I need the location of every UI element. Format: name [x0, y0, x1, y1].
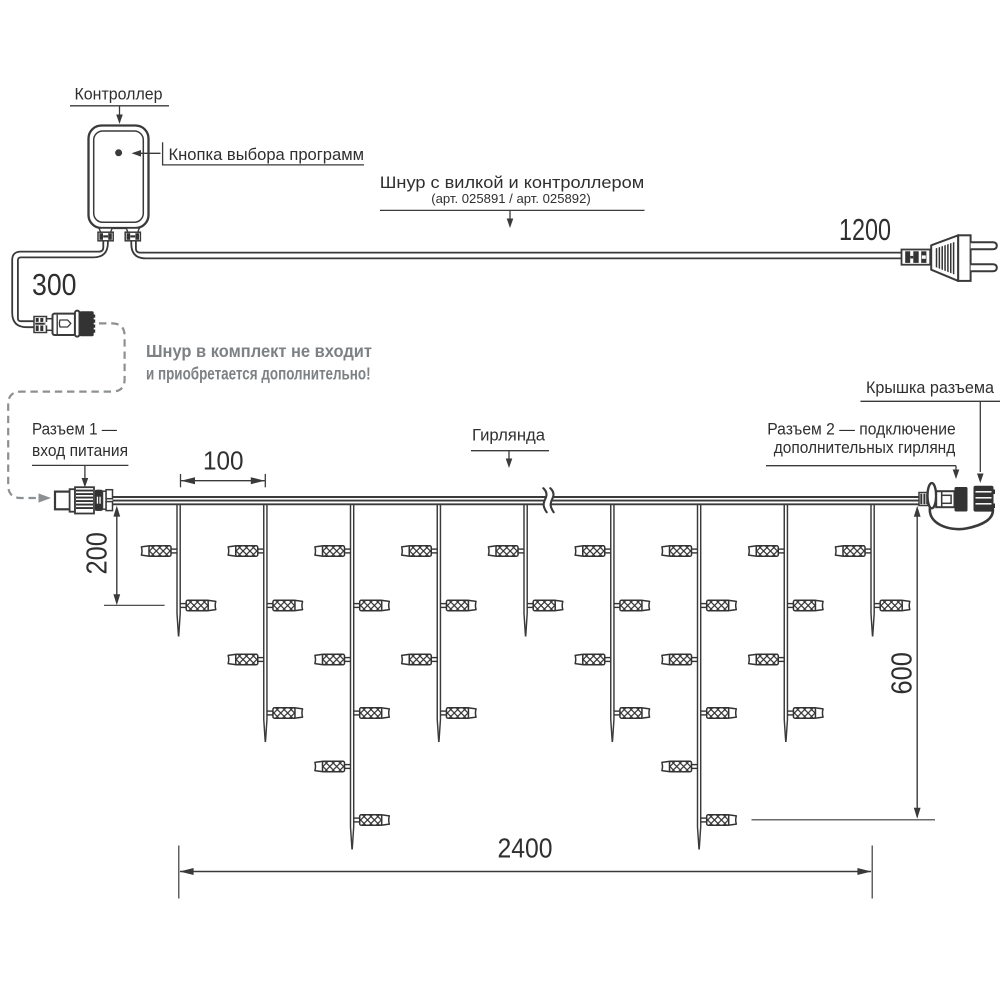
svg-text:300: 300	[32, 268, 77, 302]
svg-text:100: 100	[203, 447, 244, 475]
svg-text:(арт. 025891 / арт. 025892): (арт. 025891 / арт. 025892)	[431, 192, 591, 206]
svg-text:1200: 1200	[839, 213, 891, 247]
svg-text:вход питания: вход питания	[32, 441, 128, 460]
svg-text:2400: 2400	[498, 833, 553, 864]
svg-text:Контроллер: Контроллер	[75, 85, 163, 104]
svg-text:200: 200	[81, 532, 113, 575]
svg-text:Крышка разъема: Крышка разъема	[866, 378, 995, 397]
svg-text:Гирлянда: Гирлянда	[472, 425, 546, 444]
svg-text:дополнительных гирлянд: дополнительных гирлянд	[774, 438, 956, 457]
svg-text:и приобретается дополнительно!: и приобретается дополнительно!	[146, 363, 371, 383]
svg-text:Разъем 2 — подключение: Разъем 2 — подключение	[767, 420, 956, 439]
svg-text:Шнур в комплект не входит: Шнур в комплект не входит	[146, 341, 372, 361]
svg-text:Разъем 1 —: Разъем 1 —	[32, 420, 117, 439]
svg-text:Кнопка выбора программ: Кнопка выбора программ	[169, 145, 365, 164]
svg-text:Шнур с вилкой и контроллером: Шнур с вилкой и контроллером	[380, 173, 645, 192]
svg-text:600: 600	[886, 652, 918, 695]
